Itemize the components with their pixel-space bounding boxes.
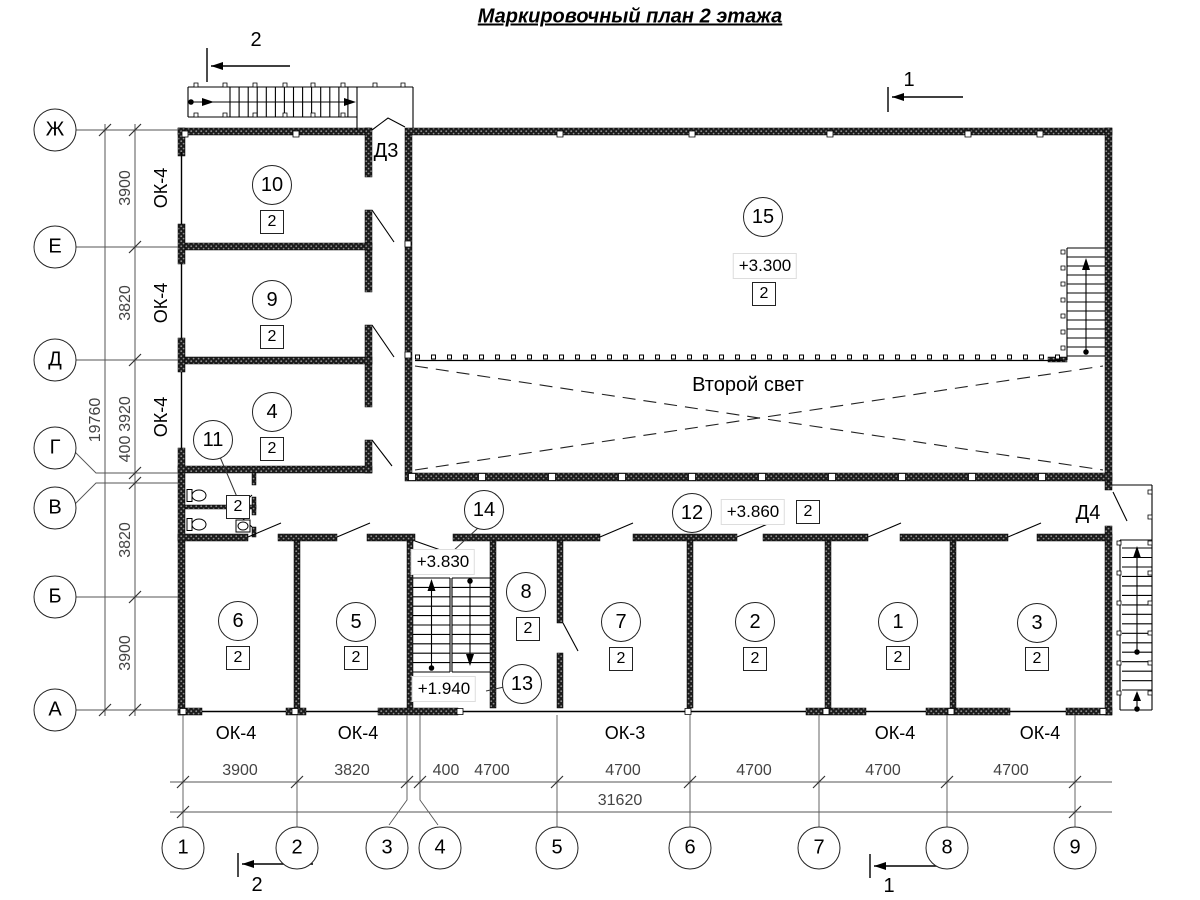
elevation-stair-lower: +1.940 [412,676,476,702]
room-type-10: 2 [260,210,284,234]
dim-left-total: 19760 [88,398,104,443]
door-label-d4: Д4 [1076,503,1101,523]
room-type-12: 2 [796,500,820,524]
room-circle-12: 12 [672,493,712,533]
window-label-left-1: ОК-4 [152,283,170,324]
window-label-bottom-4: ОК-4 [1020,724,1061,742]
window-label-bottom-1: ОК-4 [338,724,379,742]
floor-plan-canvas: Маркировочный план 2 этажа 2 1 2 1 Ж Е Д… [0,0,1200,900]
door-label-d3: Д3 [374,141,399,161]
axis-bubble-g: Г [34,427,77,470]
room-type-8: 2 [516,617,540,641]
axis-bubble-v: В [34,487,77,530]
room-circle-13: 13 [502,664,542,704]
dim-left-3: 400 [118,436,134,463]
axis-bubble-3: 3 [366,827,409,870]
room-circle-10: 10 [252,165,292,205]
dim-left-4: 3820 [118,522,134,558]
room-type-5: 2 [344,646,368,670]
axis-bubble-a: А [34,689,77,732]
dim-left-1: 3820 [118,285,134,321]
dim-bottom-5: 4700 [736,763,772,779]
elevation-hall: +3.300 [733,253,797,279]
room-circle-7: 7 [601,602,641,642]
interior-walls [178,128,1112,708]
page-title: Маркировочный план 2 этажа [478,6,783,29]
room-type-3: 2 [1025,647,1049,671]
axis-bubble-7: 7 [798,827,841,870]
wall-posts [180,83,1152,715]
axis-bubble-b: Б [34,576,77,619]
window-label-left-2: ОК-4 [152,397,170,438]
section-mark-1-bottom: 1 [883,876,894,896]
section-mark-1-top: 1 [903,70,914,90]
room-type-7: 2 [609,647,633,671]
dim-bottom-3: 4700 [474,763,510,779]
dim-bottom-6: 4700 [865,763,901,779]
axis-bubble-8: 8 [926,827,969,870]
axis-bubble-4: 4 [419,827,462,870]
axis-bubble-6: 6 [669,827,712,870]
room-circle-11: 11 [193,420,233,460]
room-type-9: 2 [260,325,284,349]
axis-bubble-zh: Ж [34,109,77,152]
section-mark-2-top: 2 [250,30,261,50]
window-label-bottom-0: ОК-4 [216,724,257,742]
room-type-4: 2 [260,437,284,461]
axis-bubble-d: Д [34,339,77,382]
room-circle-8: 8 [506,572,546,612]
window-label-bottom-3: ОК-4 [875,724,916,742]
dim-left-5: 3900 [118,635,134,671]
axis-bubble-5: 5 [536,827,579,870]
room-circle-2: 2 [735,602,775,642]
window-label-bottom-2: ОК-3 [605,724,646,742]
dim-bottom-total: 31620 [598,793,643,809]
room-circle-14: 14 [464,490,504,530]
dim-left-2: 3920 [118,396,134,432]
elevation-corridor: +3.860 [721,499,785,525]
dim-bottom-1: 3820 [334,763,370,779]
section-mark-2-bottom: 2 [251,875,262,895]
room-circle-3: 3 [1017,603,1057,643]
dim-bottom-4: 4700 [605,763,641,779]
middle-stairwell [413,578,490,672]
axis-bubble-9: 9 [1054,827,1097,870]
room-type-1: 2 [886,646,910,670]
section-mark-arrows [207,48,963,878]
dim-left-0: 3900 [118,170,134,206]
outer-walls [178,128,1112,715]
room-circle-15: 15 [743,197,783,237]
second-light-label: Второй свет [692,375,804,395]
room-circle-6: 6 [218,601,258,641]
room-type-11: 2 [226,495,250,519]
window-label-left-0: ОК-4 [152,168,170,209]
room-type-2: 2 [743,647,767,671]
dim-bottom-0: 3900 [222,763,258,779]
axis-bubble-e: Е [34,226,77,269]
elevation-stair-upper: +3.830 [411,549,475,575]
room-circle-5: 5 [336,602,376,642]
dim-bottom-7: 4700 [993,763,1029,779]
second-light-railing [415,357,1063,361]
room-circle-1: 1 [878,602,918,642]
room-type-15: 2 [752,282,776,306]
axis-bubble-2: 2 [276,827,319,870]
top-external-stair [188,87,413,130]
dim-bottom-2: 400 [433,763,460,779]
right-external-stair [1112,485,1152,711]
room-circle-4: 4 [252,392,292,432]
hall-internal-stair [1067,248,1105,360]
room-type-6: 2 [226,646,250,670]
room-circle-9: 9 [252,280,292,320]
axis-bubble-1: 1 [162,827,205,870]
